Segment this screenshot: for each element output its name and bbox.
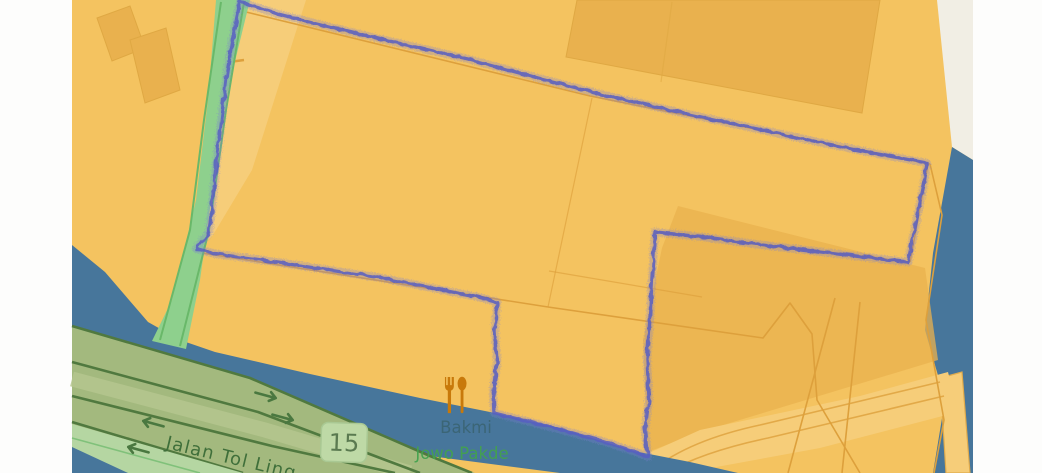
background-right-column [973,0,1042,473]
map-svg: Jalan Tol Ling 15 Bakmi Jowo Pakde [0,0,1042,473]
road-shield: 15 [320,422,367,463]
road-shield-number: 15 [328,428,360,457]
poi-label-line2: Jowo Pakde [414,444,508,463]
map-canvas[interactable]: Jalan Tol Ling 15 Bakmi Jowo Pakde [0,0,1042,473]
poi-label-line1: Bakmi [440,418,492,437]
